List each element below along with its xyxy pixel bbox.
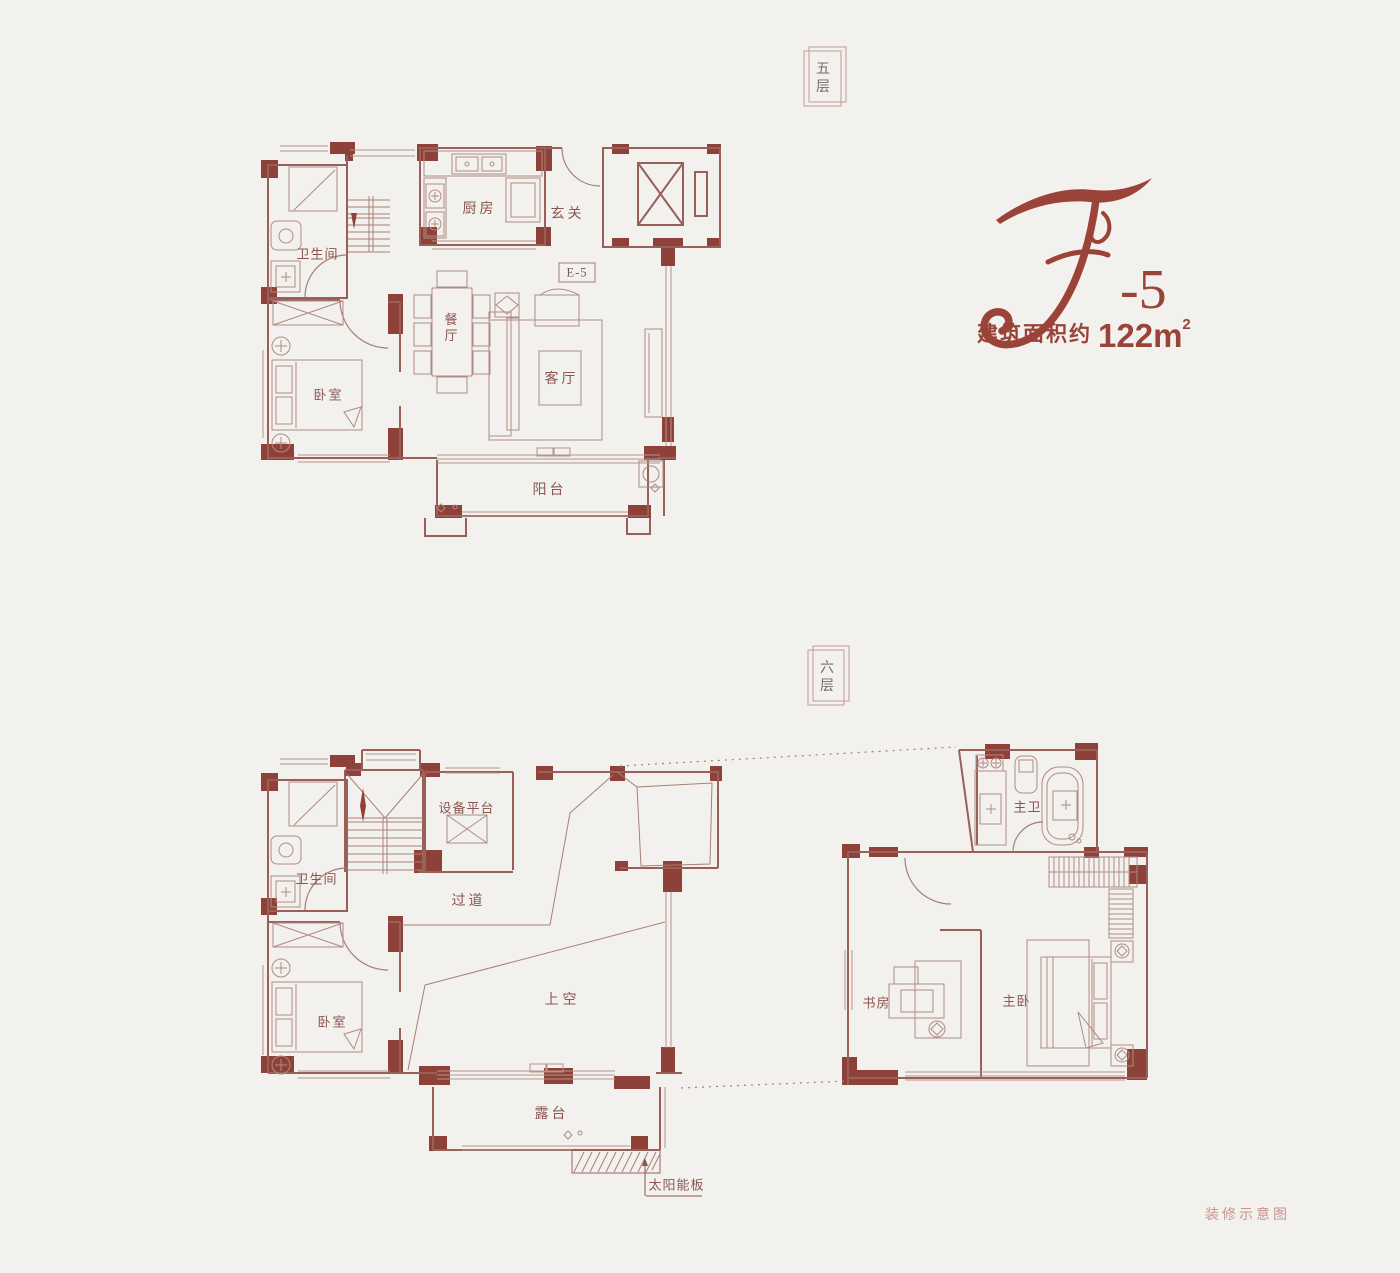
floor6-detail-walls (848, 750, 1147, 1085)
room-label-terrace-f6: 露台 (532, 1103, 569, 1123)
detail-connector-lines (620, 747, 956, 1088)
floor6-detail-windows (845, 950, 1125, 1080)
floor5-stairs (348, 196, 390, 252)
floor6-detail-plan (842, 743, 1148, 1085)
floor6-tag: 六层 (817, 660, 837, 696)
room-label-kitchen-f5: 厨房 (460, 198, 497, 218)
doc-note: 装修示意图 (1205, 1204, 1290, 1224)
solar-panel-label: 太阳能板 (647, 1175, 704, 1194)
floor6-stairs (347, 774, 423, 874)
unit-code-label-f5: E-5 (566, 266, 587, 281)
floorplan-canvas: 五层 六层 卫生间 厨房 玄关 E-5 餐厅 客厅 卧室 阳台 卫生间 设备平台… (0, 0, 1400, 1273)
floor6-plan (261, 750, 722, 1196)
room-label-equipment-f6: 设备平台 (437, 798, 494, 817)
room-label-bedroom-f5: 卧室 (312, 385, 343, 404)
floor5-tag: 五层 (813, 61, 833, 97)
floorplan-drawing (0, 0, 1400, 1273)
room-label-master-bath-f6: 主卫 (1012, 797, 1041, 816)
room-label-dining-f5: 餐厅 (444, 312, 459, 345)
room-label-bedroom-f6: 卧室 (316, 1012, 347, 1031)
floor6-detail-doors (905, 822, 1043, 904)
area-prefix: 建筑面积约 (977, 323, 1092, 346)
floor-tag-boxes (804, 47, 849, 705)
room-label-bathroom-f5: 卫生间 (295, 244, 338, 263)
unit-code-suffix: -5 (1120, 258, 1167, 322)
area-number: 122m (1098, 317, 1182, 354)
area-superscript: 2 (1182, 316, 1190, 333)
room-label-foyer-f5: 玄关 (548, 203, 585, 223)
room-label-master-bed-f6: 主卧 (1001, 991, 1030, 1010)
room-label-bathroom-f6: 卫生间 (294, 869, 337, 888)
room-label-void-f6: 上空 (542, 989, 581, 1009)
room-label-balcony-f5: 阳台 (530, 479, 567, 499)
room-label-living-f5: 客厅 (542, 368, 579, 388)
area-text: 建筑面积约122m2 (977, 316, 1191, 355)
room-label-study-f6: 书房 (861, 993, 890, 1012)
room-label-corridor-f6: 过道 (449, 890, 486, 910)
floor6-furniture (271, 782, 582, 1139)
